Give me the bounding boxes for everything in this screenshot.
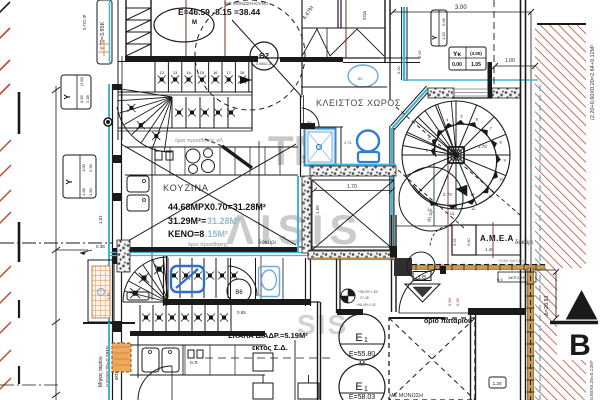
svg-text:1.20: 1.20 [493, 381, 502, 386]
svg-text:ΛΥΟΜ. ΚΑΓΚΕΛΟ: ΛΥΟΜ. ΚΑΓΚΕΛΟ [498, 259, 526, 263]
svg-text:.15Μ²: .15Μ² [205, 229, 228, 239]
svg-text:1.20: 1.20 [441, 31, 446, 40]
svg-text:ΣΚΑΛΑ ΔΙΑΔΡ.=5.19Μ²: ΣΚΑΛΑ ΔΙΑΔΡ.=5.19Μ² [228, 331, 308, 340]
svg-text:ΚΕΝΟ=8: ΚΕΝΟ=8 [168, 229, 204, 239]
svg-text:E: E [355, 332, 362, 344]
svg-text:δοκάρι: δοκάρι [258, 239, 276, 246]
svg-text:B: B [569, 329, 591, 362]
svg-text:2.38: 2.38 [85, 94, 90, 103]
svg-text:14: 14 [186, 70, 191, 75]
svg-text:1: 1 [364, 386, 368, 393]
svg-text:E=58.03: E=58.03 [349, 394, 375, 400]
svg-text:0.35: 0.35 [455, 297, 460, 306]
svg-text:ο.π: ο.π [190, 360, 198, 366]
svg-text:10: 10 [499, 177, 504, 182]
svg-text:2.08: 2.08 [301, 154, 306, 163]
svg-text:Δ=28.91: Δ=28.91 [544, 295, 550, 316]
svg-text:1.00: 1.00 [81, 163, 86, 172]
svg-text:όριο προσθήκης: όριο προσθήκης [188, 241, 228, 248]
svg-text:ΚΛΕΙΣΤΟΣ ΧΩΡΟΣ: ΚΛΕΙΣΤΟΣ ΧΩΡΟΣ [316, 98, 401, 108]
svg-text:0.62: 0.62 [417, 49, 422, 58]
svg-text:.80: .80 [306, 120, 312, 125]
svg-text:E=55.80: E=55.80 [349, 351, 375, 358]
svg-text:+98.00+1.92: +98.00+1.92 [356, 303, 376, 307]
svg-text:εκτός Σ.Δ.: εκτός Σ.Δ. [252, 343, 288, 352]
svg-text:3.00: 3.00 [455, 5, 467, 11]
svg-text:Yκ: Yκ [453, 51, 461, 58]
svg-text:27.48: 27.48 [360, 296, 369, 300]
svg-text:E: E [355, 381, 362, 393]
svg-text:Y.70=3.95K: Y.70=3.95K [100, 21, 106, 50]
svg-text:15: 15 [200, 70, 205, 75]
svg-text:12: 12 [159, 70, 164, 75]
svg-text:ΚΟΥΖΙΝΑ: ΚΟΥΖΙΝΑ [163, 183, 209, 193]
svg-text:0.38: 0.38 [96, 244, 105, 249]
svg-text:0.55: 0.55 [452, 237, 457, 246]
svg-text:2.70: 2.70 [478, 144, 487, 149]
svg-text:1.71: 1.71 [344, 140, 353, 145]
svg-text:1.70: 1.70 [347, 184, 357, 190]
svg-text:18: 18 [240, 70, 245, 75]
svg-text:Y: Y [63, 94, 72, 100]
svg-text:Μήκος αερίου: Μήκος αερίου [97, 356, 104, 387]
svg-text:δοκάρι: δοκάρι [515, 239, 533, 246]
svg-text:0.85: 0.85 [237, 310, 246, 315]
svg-text:1.30: 1.30 [106, 291, 111, 300]
svg-text:0.ΠΟ.Φ: 0.ΠΟ.Φ [82, 14, 87, 30]
svg-text:13: 13 [450, 211, 455, 216]
svg-text:ΛISIS: ΛISIS [226, 206, 363, 253]
svg-text:1.01: 1.01 [98, 215, 103, 224]
svg-text:0.80: 0.80 [466, 237, 471, 246]
svg-text:ΔΕΡ.2.ΧΡ: ΔΕΡ.2.ΧΡ [508, 275, 526, 280]
svg-text:ΣΟΔ: ΣΟΔ [362, 11, 367, 20]
svg-text:17: 17 [226, 70, 231, 75]
svg-text:1: 1 [364, 337, 368, 344]
svg-text:1.90: 1.90 [88, 187, 93, 196]
svg-text:0.00: 0.00 [452, 62, 462, 68]
svg-text:12: 12 [471, 206, 476, 211]
svg-text:0.90Χ2.20: 0.90Χ2.20 [256, 62, 272, 66]
svg-text:1.05: 1.05 [471, 62, 481, 68]
svg-text:18: 18 [470, 192, 475, 197]
svg-text:0.5: 0.5 [497, 277, 503, 282]
svg-text:(3.00): (3.00) [470, 51, 482, 56]
svg-text:1.98: 1.98 [81, 187, 86, 196]
svg-text:1.55: 1.55 [315, 205, 320, 214]
svg-text:44.68ΜΡΧ0.70=31.28Μ²: 44.68ΜΡΧ0.70=31.28Μ² [168, 202, 266, 212]
svg-text:(2.20+0.60Χ0.20=2.64+0.12M²: (2.20+0.60Χ0.20=2.64+0.12M² [590, 45, 596, 120]
svg-text:0.60Χ0.20=0.12M²: 0.60Χ0.20=0.12M² [589, 360, 595, 400]
svg-text:όριο προσθήκης κΛ: όριο προσθήκης κΛ [175, 137, 223, 144]
svg-text:όριο παταριού: όριο παταριού [424, 318, 472, 325]
svg-text:0.90: 0.90 [447, 297, 452, 306]
svg-text:B6: B6 [235, 290, 243, 296]
svg-text:.80: .80 [357, 76, 363, 81]
svg-text:Α.Μ.Ε.Α: Α.Μ.Ε.Α [480, 234, 514, 243]
svg-text:Y: Y [65, 179, 74, 185]
svg-text:ΜΕ ΜΟΝΩΣΗ: ΜΕ ΜΟΝΩΣΗ [389, 393, 423, 399]
svg-text:0.30: 0.30 [396, 65, 401, 74]
svg-text:2.35: 2.35 [88, 163, 93, 172]
svg-text:Ε=46.59 -8.15 =38.44: Ε=46.59 -8.15 =38.44 [178, 7, 261, 17]
svg-text:1.00: 1.00 [505, 58, 515, 64]
svg-text:0.99: 0.99 [79, 94, 84, 103]
svg-text:+98.09+1.50: +98.09+1.50 [358, 290, 378, 294]
svg-text:31.28Μ²: 31.28Μ² [207, 216, 240, 226]
svg-text:16: 16 [213, 70, 218, 75]
svg-text:2.06: 2.06 [441, 17, 446, 26]
svg-text:Y: Y [432, 35, 439, 40]
svg-text:31.29Μ²=: 31.29Μ²= [168, 216, 206, 226]
svg-text:Μ: Μ [192, 20, 197, 26]
svg-text:(3.00): (3.00) [80, 77, 84, 86]
svg-text:13: 13 [173, 70, 178, 75]
